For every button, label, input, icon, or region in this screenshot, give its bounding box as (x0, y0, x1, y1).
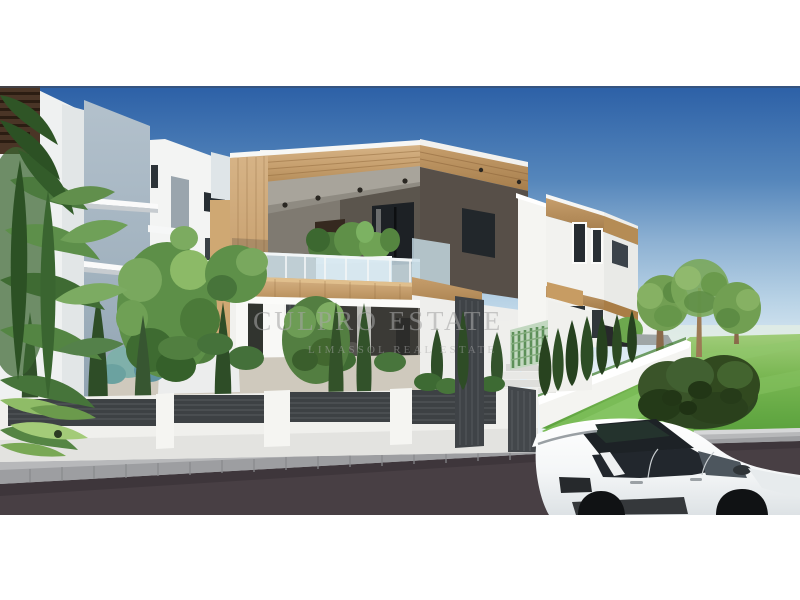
svg-text:CULPRO ESTATE: CULPRO ESTATE (253, 305, 503, 336)
svg-text:LIMASSOL REAL ESTATE: LIMASSOL REAL ESTATE (308, 344, 497, 356)
